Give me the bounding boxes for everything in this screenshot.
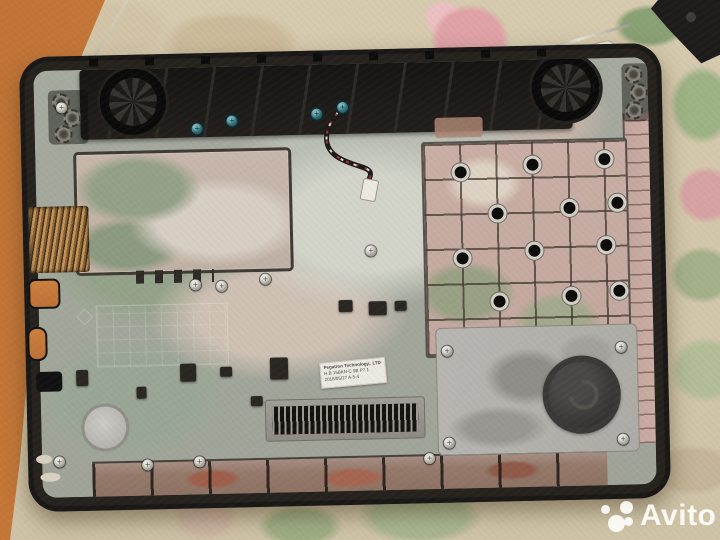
screw (190, 279, 201, 290)
screw-hole (597, 236, 615, 254)
speaker-wire (304, 92, 427, 225)
gear-icon (54, 125, 72, 143)
plastic-clip (395, 301, 407, 311)
screw-hole (451, 163, 469, 181)
plastic-clip (251, 396, 263, 406)
plastic-clip (220, 367, 232, 377)
screw-hole (490, 292, 508, 310)
screw-teal (226, 115, 237, 126)
avito-watermark: Avito (601, 497, 716, 536)
plastic-clip (339, 300, 353, 312)
plastic-clip (270, 357, 288, 379)
wire-connector (360, 178, 379, 201)
screw (194, 456, 205, 467)
service-label: Pegatron Technology.. LTD H.B 15BKN-C 9B… (319, 357, 387, 389)
port-cutout (36, 371, 62, 392)
plastic-clip (136, 387, 146, 399)
screw (618, 434, 629, 445)
vent-grille-slats (272, 403, 419, 434)
photo-laptop-bottom-case: Pegatron Technology.. LTD H.B 15BKN-C 9B… (0, 0, 720, 540)
battery-bay (73, 147, 294, 276)
hinge-gears-left (48, 90, 89, 145)
port-cutout (27, 327, 48, 361)
memory-panel (435, 323, 640, 456)
port-cutout (28, 278, 61, 309)
battery-connector-teeth (136, 269, 214, 284)
screw (424, 453, 435, 464)
round-foot-left (84, 406, 127, 449)
laptop-case-shell: Pegatron Technology.. LTD H.B 15BKN-C 9B… (19, 43, 671, 512)
watermark-text: Avito (640, 497, 716, 536)
screw-hole (488, 204, 506, 222)
gear-icon (624, 65, 642, 83)
screw-hole (595, 150, 613, 168)
screw (365, 245, 376, 256)
screw-teal (191, 123, 202, 134)
foot-ring (563, 374, 605, 416)
screw (260, 274, 271, 285)
gear-icon (625, 101, 643, 119)
screw (216, 281, 227, 292)
copper-patch (434, 117, 482, 138)
screw-hole (560, 199, 578, 217)
case-interior: Pegatron Technology.. LTD H.B 15BKN-C 9B… (33, 57, 657, 498)
screw (54, 456, 65, 467)
screw-hole (562, 287, 580, 305)
avito-logo-icon (601, 500, 635, 536)
recycling-triangle-icon (76, 308, 93, 325)
screw-hole (453, 249, 471, 267)
plastic-clip (369, 301, 387, 315)
plastic-clip (76, 370, 88, 386)
speaker-right-icon (531, 57, 600, 122)
screw-hole (523, 156, 541, 174)
screw (442, 346, 453, 357)
molded-certification-marks (96, 303, 229, 368)
plastic-clip (180, 363, 196, 381)
screw-teal (311, 108, 322, 119)
screw (616, 342, 627, 353)
screw (142, 459, 153, 470)
screw-hole (525, 241, 543, 259)
rubber-foot (542, 355, 622, 435)
screw-teal (337, 102, 348, 113)
screw (444, 438, 455, 449)
bottom-rib-compartments (92, 450, 608, 498)
screw (56, 102, 67, 113)
heatsink-fins (28, 206, 89, 273)
gear-icon (630, 83, 648, 101)
vent-grille (265, 396, 426, 442)
screw-hole (608, 194, 626, 212)
hinge-gears-right (621, 63, 648, 122)
screw-hole (610, 282, 628, 300)
